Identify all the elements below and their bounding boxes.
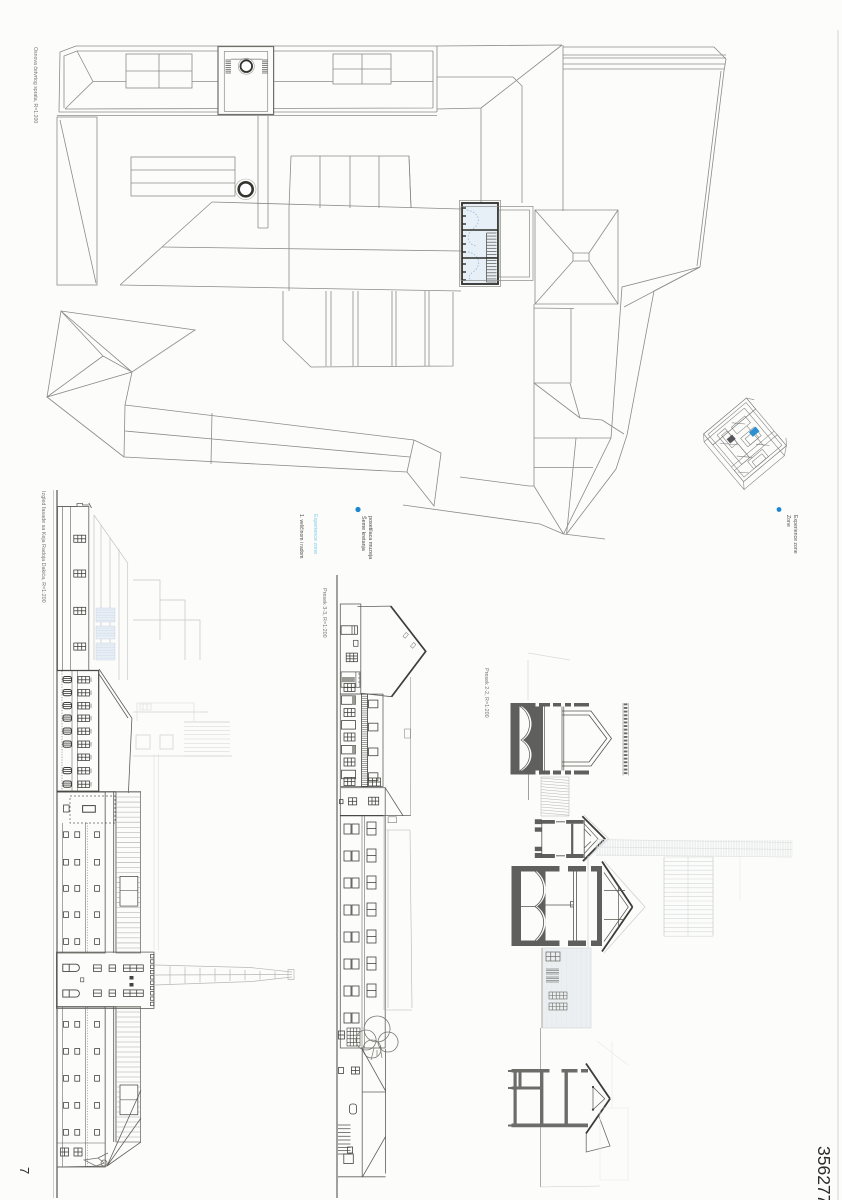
svg-text:356277: 356277 — [814, 1146, 834, 1200]
svg-text:Zone: Zone — [785, 515, 791, 527]
svg-text:Presek 2-2, R=1:200: Presek 2-2, R=1:200 — [483, 668, 489, 718]
svg-text:Osnova četvrtog sprata, R=1:20: Osnova četvrtog sprata, R=1:200 — [32, 47, 38, 123]
svg-text:Presek 3-3, R=1:200: Presek 3-3, R=1:200 — [321, 588, 327, 638]
svg-text:Šeme kretanja: Šeme kretanja — [360, 516, 367, 551]
svg-text:Experience zone: Experience zone — [792, 515, 798, 554]
svg-text:posetilaca muzeja: posetilaca muzeja — [367, 516, 373, 559]
svg-text:Experience zone: Experience zone — [312, 514, 318, 554]
svg-text:7: 7 — [17, 1167, 32, 1174]
svg-text:1. veličinom i radom: 1. veličinom i radom — [298, 514, 304, 558]
svg-text:Izgled fasade sa Keja Radoja D: Izgled fasade sa Keja Radoja Dakića, R=1… — [40, 491, 46, 603]
